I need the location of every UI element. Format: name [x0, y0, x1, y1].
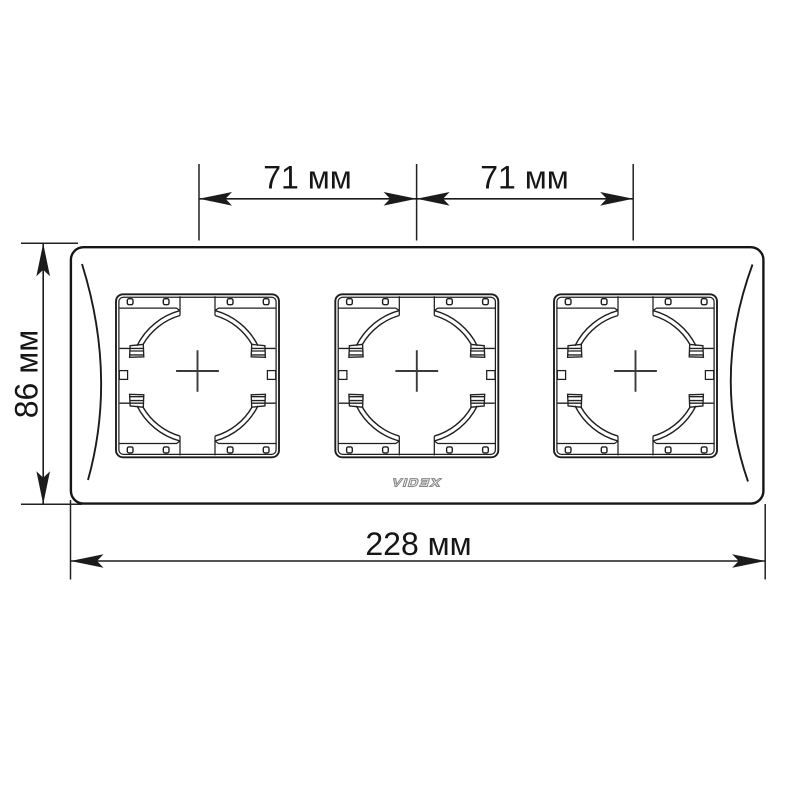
- svg-text:228 мм: 228 мм: [365, 526, 471, 562]
- svg-text:71 мм: 71 мм: [480, 160, 568, 196]
- svg-text:86 мм: 86 мм: [9, 330, 45, 418]
- svg-text:71 мм: 71 мм: [263, 160, 351, 196]
